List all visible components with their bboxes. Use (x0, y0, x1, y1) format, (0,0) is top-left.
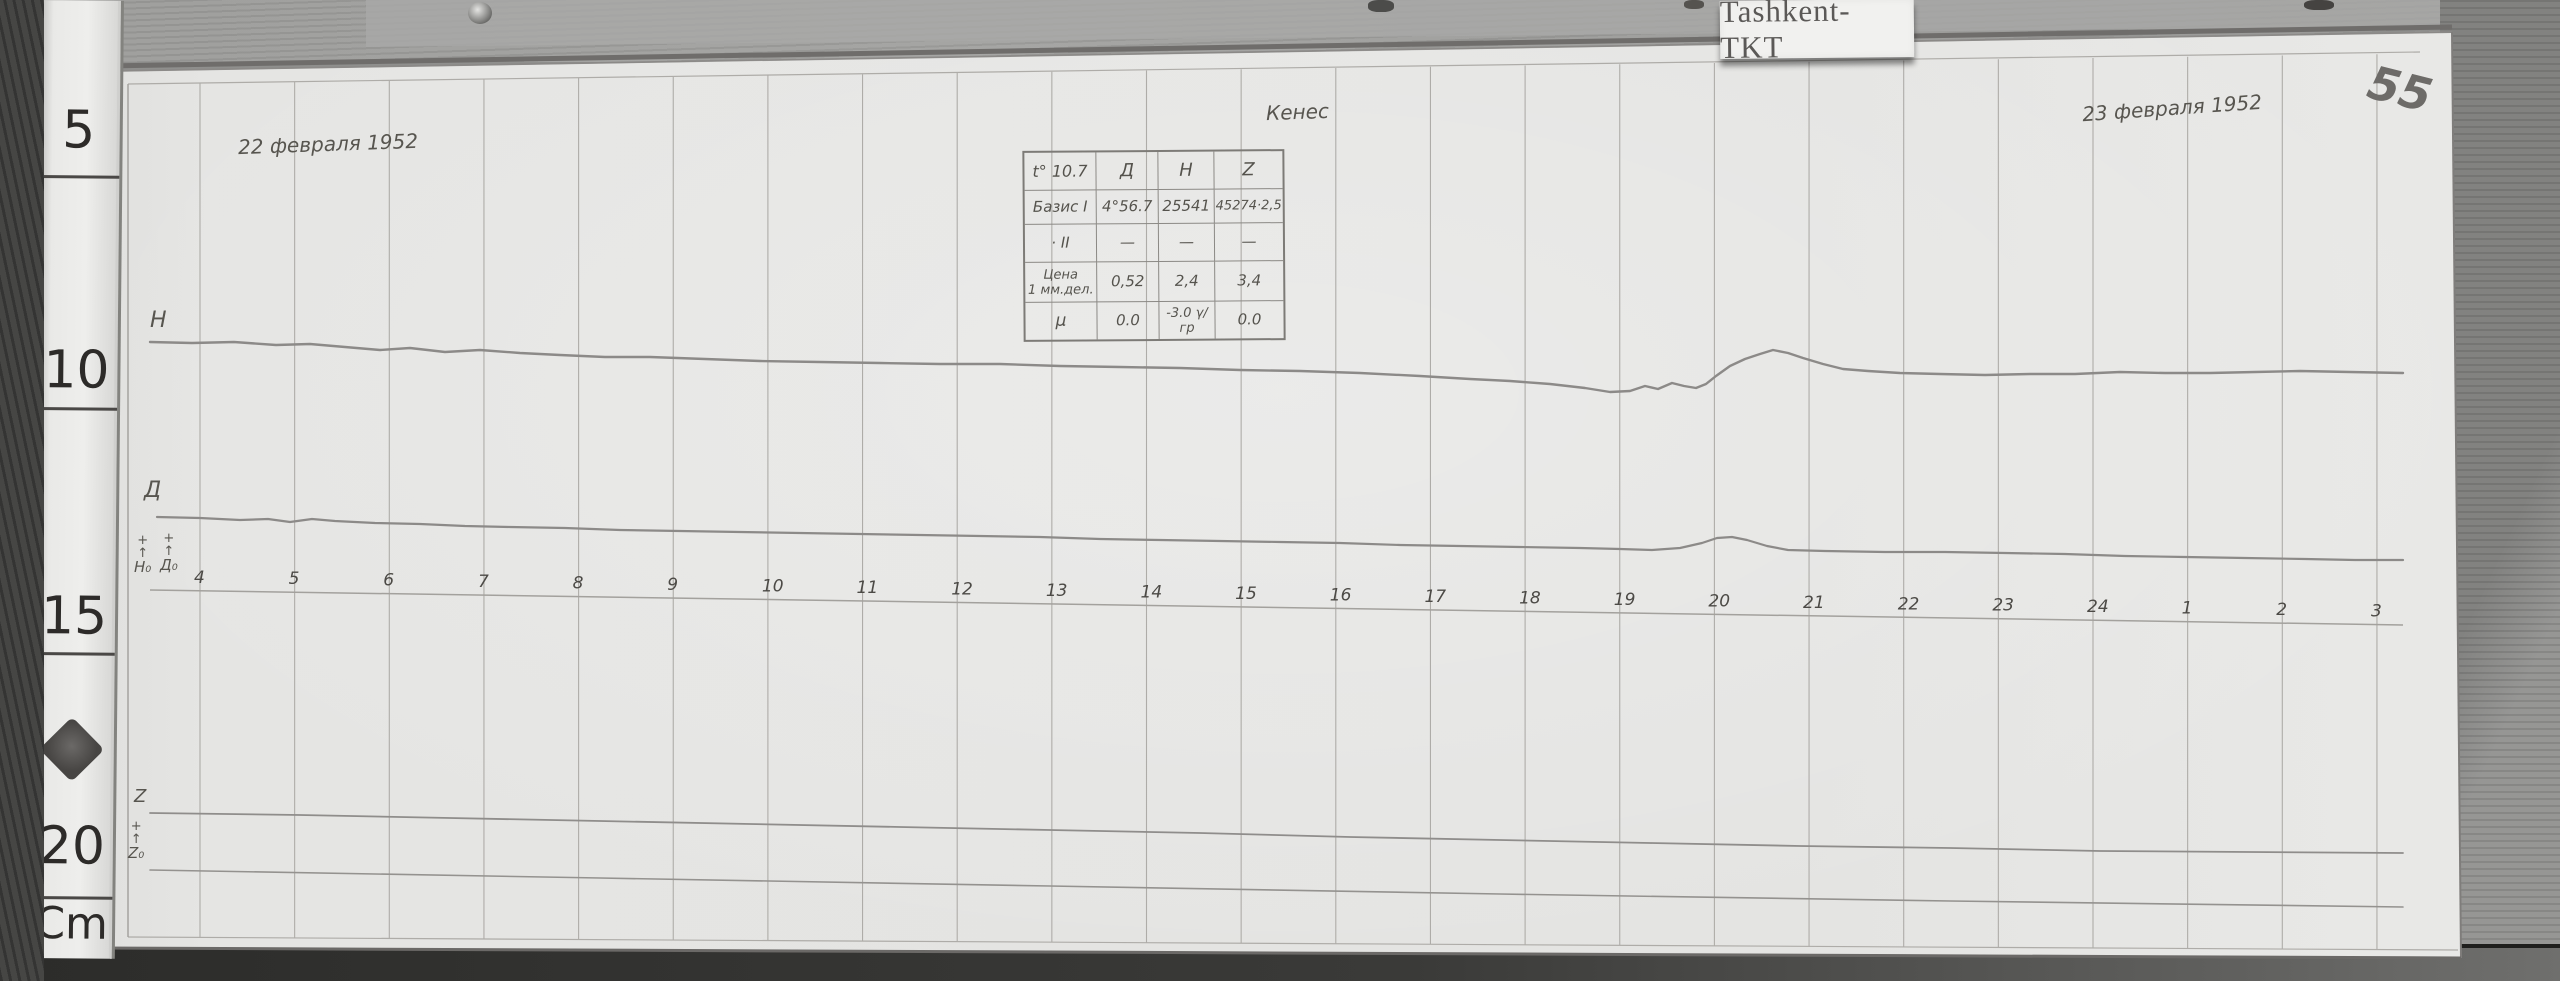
baseline-label: Д₀ (160, 559, 178, 572)
pin-icon (1684, 0, 1704, 9)
baseline-mark-d0: + ↑ Д₀ (160, 532, 178, 572)
table-cell: · II (1025, 224, 1097, 263)
ruler-division (33, 652, 115, 656)
trace-label-d: Д (144, 478, 161, 503)
table-cell: -3.0 γ/гр (1159, 302, 1215, 339)
table-cell: 3,4 (1215, 261, 1283, 301)
ruler-mark-10: 10 (35, 340, 118, 401)
ruler-mark-5: 5 (37, 100, 120, 161)
ruler-mark-15: 15 (33, 586, 116, 647)
station-label-card: Tashkent-TKT (1720, 0, 1915, 59)
magnetogram-photo: 456789101112131415161718192021222324123 … (0, 0, 2560, 981)
table-cell: — (1215, 223, 1283, 261)
pin-icon (468, 2, 492, 24)
table-cell: 0.0 (1215, 301, 1283, 338)
table-cell: Z (1214, 151, 1282, 189)
baseline-mark-h0: + ↑ Н₀ (134, 534, 151, 574)
table-cell: μ (1025, 302, 1097, 340)
observer-signature: Кенес (1266, 99, 1330, 125)
table-cell: Н (1158, 152, 1214, 190)
table-cell: 45274·2,5 (1215, 189, 1283, 223)
table-cell: — (1159, 224, 1215, 262)
table-cell: t° 10.7 (1024, 152, 1096, 191)
table-cell: Д (1096, 152, 1158, 190)
table-cell: 0,52 (1097, 262, 1159, 302)
baseline-mark-z0: + ↑ Z₀ (128, 820, 144, 860)
trace-label-h: Н (150, 308, 167, 333)
ruler-knot (39, 717, 104, 782)
ruler-division (37, 175, 119, 179)
pin-icon (1368, 0, 1394, 12)
table-cell: Базис I (1025, 190, 1097, 225)
observation-table: t° 10.7 Д Н Z Базис I 4°56.7 25541 45274… (1022, 149, 1285, 342)
ruler-division (35, 407, 117, 411)
station-name: Tashkent-TKT (1720, 0, 1915, 66)
pin-icon (2304, 0, 2334, 10)
left-wood-edge (0, 0, 44, 981)
table-cell: — (1097, 224, 1159, 262)
baseline-label: Н₀ (134, 561, 151, 574)
table-cell: 2,4 (1159, 262, 1215, 302)
table-cell: 25541 (1159, 190, 1215, 224)
table-cell: Цена 1 мм.дел. (1025, 262, 1097, 303)
table-cell: 4°56.7 (1097, 190, 1159, 224)
baseline-label: Z₀ (128, 847, 144, 860)
table-cell: 0.0 (1097, 302, 1159, 339)
trace-label-z: Z (134, 786, 146, 807)
